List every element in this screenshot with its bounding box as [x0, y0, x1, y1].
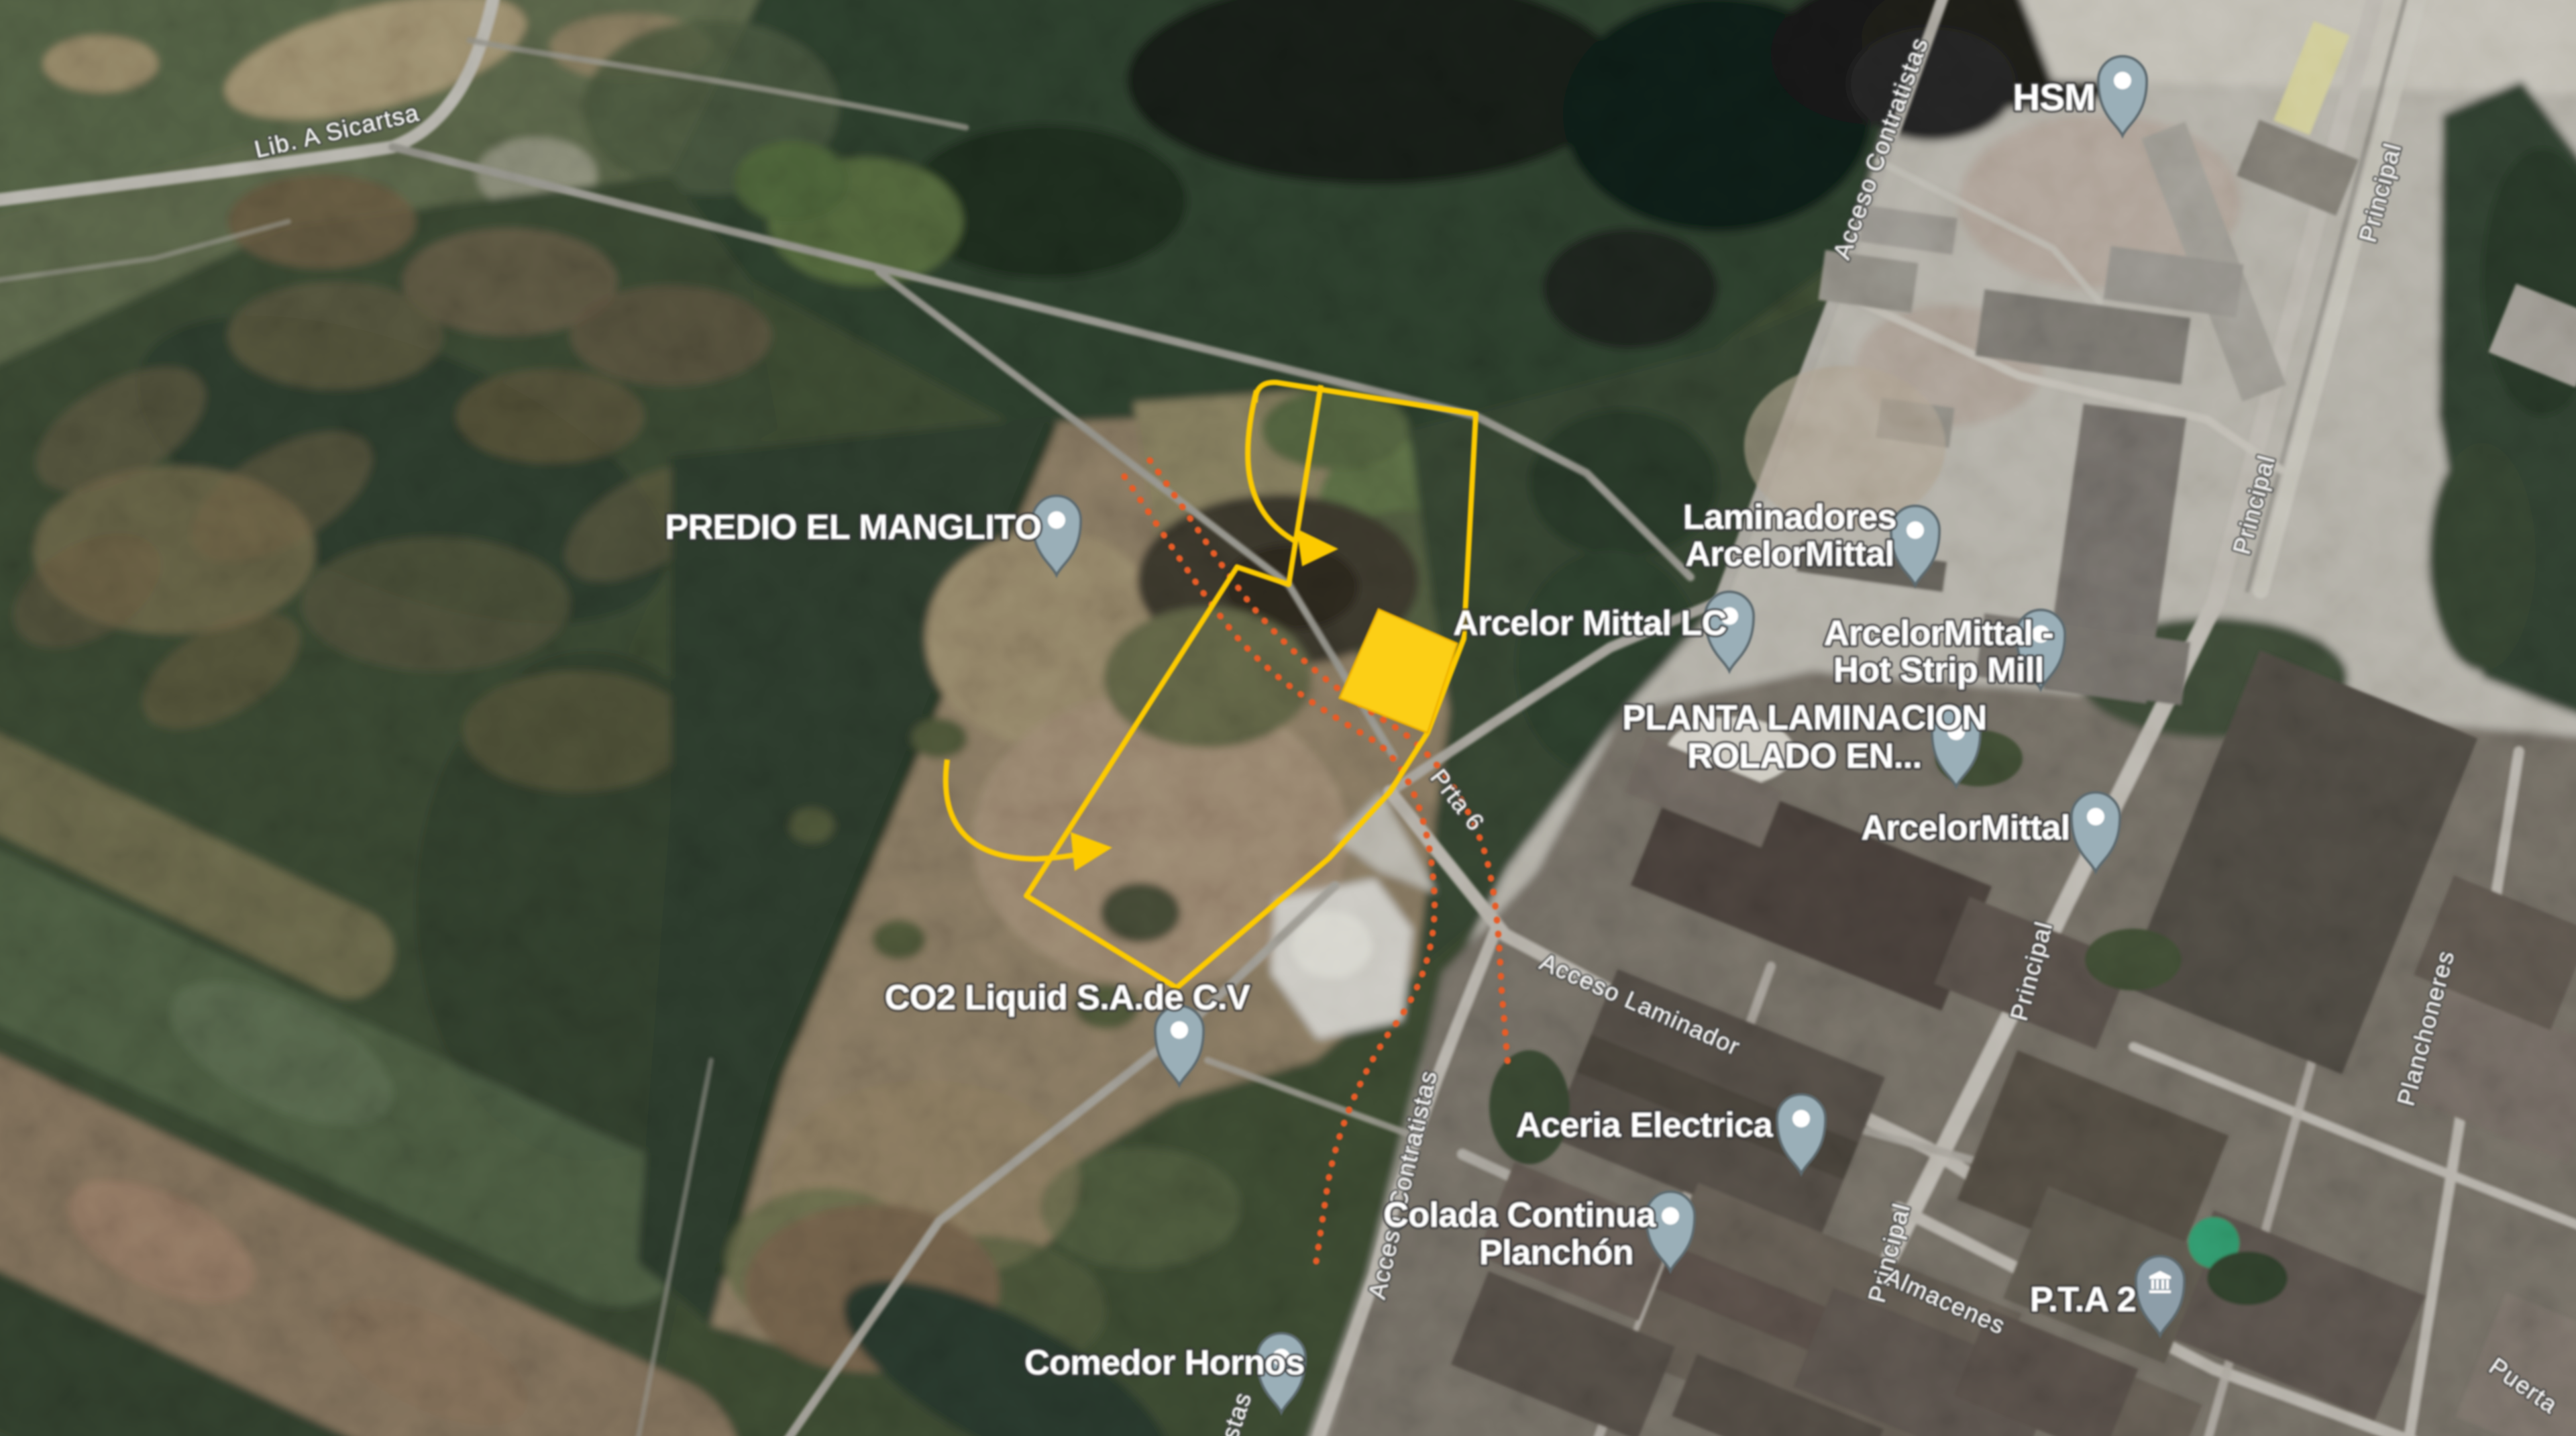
svg-text:PREDIO EL MANGLITO: PREDIO EL MANGLITO	[665, 508, 1041, 547]
svg-text:P.T.A 2: P.T.A 2	[2030, 1280, 2136, 1319]
svg-text:LaminadoresArcelorMittal: LaminadoresArcelorMittal	[1683, 498, 1896, 574]
svg-text:HSM: HSM	[2013, 76, 2096, 118]
svg-text:Comedor Hornos: Comedor Hornos	[1024, 1343, 1305, 1382]
svg-text:ArcelorMittal -Hot Strip Mill: ArcelorMittal -Hot Strip Mill	[1824, 614, 2053, 690]
svg-text:Aceria Electrica: Aceria Electrica	[1516, 1106, 1774, 1145]
svg-text:ArcelorMittal: ArcelorMittal	[1861, 809, 2070, 848]
svg-text:CO2 Liquid S.A.de C.V: CO2 Liquid S.A.de C.V	[885, 978, 1250, 1017]
svg-text:Arcelor Mittal LC: Arcelor Mittal LC	[1453, 604, 1727, 643]
